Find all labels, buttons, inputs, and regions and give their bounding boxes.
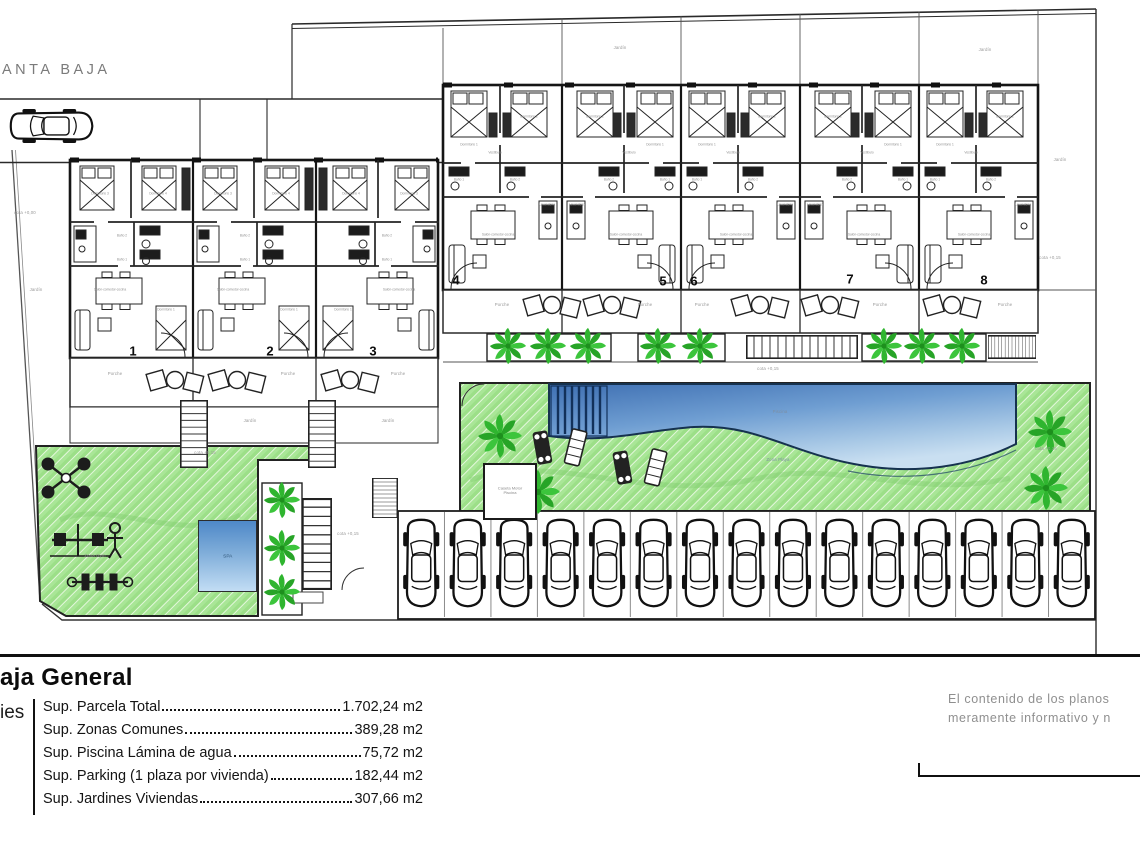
palm-tree-icon: [1024, 466, 1068, 510]
room-label: Dormitorio 1: [884, 143, 902, 146]
porch-label: Porche: [495, 303, 510, 307]
parked-car-icon: [775, 520, 811, 606]
disclaimer-line2: meramente informativo y n: [948, 709, 1111, 728]
room-label: Baño 2: [604, 178, 614, 181]
palm-tree-icon: [944, 328, 980, 364]
room-label: Salón-comedor-cocina: [482, 233, 514, 236]
parked-car-icon: [636, 520, 672, 606]
surface-list: Sup. Parcela Total 1.702,24 m2 Sup. Zona…: [43, 699, 423, 814]
surface-value: 75,72 m2: [363, 745, 423, 761]
parked-car-icon: [543, 520, 579, 606]
room-label: Dormitorio 1: [157, 308, 175, 311]
room-label: Vestíbulo: [726, 151, 739, 154]
room-label: Salón-comedor-cocina: [94, 288, 126, 291]
room-label: Baño 2: [382, 234, 392, 237]
palm-tree-icon: [490, 328, 526, 364]
unit-number: 2: [266, 344, 273, 359]
room-label: Dormitorio 1: [646, 143, 664, 146]
room-label: Dormitorio 1: [698, 143, 716, 146]
garden-label: Jardín: [1054, 158, 1067, 162]
palm-tree-icon: [264, 530, 300, 566]
room-label: Lavandería: [569, 203, 585, 206]
garden-label: Jardín: [614, 46, 627, 50]
palm-tree-icon: [904, 328, 940, 364]
room-label: Baño 2: [510, 178, 520, 181]
room-label: Dormitorio 1: [334, 308, 352, 311]
room-label: Baño 1: [930, 178, 940, 181]
surface-row: Sup. Jardines Viviendas 307,66 m2: [43, 791, 423, 814]
piscina-label: Piscina: [773, 410, 788, 414]
porch-label: Porche: [108, 372, 123, 376]
room-label: Baño 1: [382, 258, 392, 261]
unit-number: 1: [129, 344, 136, 359]
unit-number: 4: [452, 273, 459, 288]
dot-leader: [162, 709, 340, 711]
parked-car-icon: [961, 520, 997, 606]
room-label: Baño 1: [240, 258, 250, 261]
surface-value: 307,66 m2: [354, 791, 423, 807]
room-label: Vestíbulo: [860, 151, 873, 154]
unit-number: 5: [659, 274, 666, 289]
parked-car-icon: [450, 520, 486, 606]
room-label: Baño 2: [117, 234, 127, 237]
garden-label: Jardín: [979, 48, 992, 52]
level-label: cota +0,15: [337, 532, 359, 536]
unit-number: 6: [690, 274, 697, 289]
parked-car-icon: [821, 520, 857, 606]
disclaimer-line1: El contenido de los planos: [948, 690, 1111, 709]
room-label: Salón-comedor-cocina: [610, 233, 642, 236]
gate-arc: [342, 568, 364, 590]
parked-car-icon: [868, 520, 904, 606]
room-label: Dormitorio 2: [824, 115, 842, 118]
room-label: Dormitorio 3: [91, 192, 109, 195]
room-label: Dormitorio 4: [342, 192, 360, 195]
room-label: Lavandería: [777, 203, 793, 206]
level-label: cota +0,15: [1039, 256, 1061, 260]
room-label: Salón-comedor-cocina: [848, 233, 880, 236]
legend-rule: [33, 699, 35, 815]
porch-label: Porche: [873, 303, 888, 307]
zona-playa-label: Zona Playa: [766, 458, 789, 462]
surface-label: Sup. Jardines Viviendas: [43, 791, 198, 807]
room-label: Dormitorio 3: [214, 192, 232, 195]
stairs-icon: [373, 478, 398, 517]
level-label: cota +0,15: [757, 367, 779, 371]
surface-label: Sup. Parking (1 plaza por vivienda): [43, 768, 269, 784]
surface-row: Sup. Parcela Total 1.702,24 m2: [43, 699, 423, 722]
room-label: Lavandería: [1015, 203, 1031, 206]
level-label: cota +0,15: [1035, 447, 1057, 451]
palm-tree-icon: [264, 574, 300, 610]
surface-value: 1.702,24 m2: [342, 699, 423, 715]
dot-leader: [271, 778, 353, 780]
parked-car-icon: [1054, 520, 1090, 606]
room-label: Baño 1: [660, 178, 670, 181]
surface-row: Sup. Piscina Lámina de agua 75,72 m2: [43, 745, 423, 768]
porch-label: Porche: [695, 303, 710, 307]
parked-car-icon: [589, 520, 625, 606]
surface-label: Sup. Parcela Total: [43, 699, 160, 715]
garden-label: Jardín: [382, 419, 395, 423]
room-label: Dormitorio 2: [996, 115, 1014, 118]
parked-car-icon: [1007, 520, 1043, 606]
room-label: Baño 2: [240, 234, 250, 237]
garden-label: Jardín: [244, 419, 257, 423]
room-label: Baño 2: [748, 178, 758, 181]
room-label: Vestíbulo: [964, 151, 977, 154]
palm-tree-icon: [570, 328, 606, 364]
legend-title: aja General: [0, 664, 133, 692]
palm-tree-icon: [640, 328, 676, 364]
plan-title: ANTA BAJA: [2, 62, 111, 78]
label-box: [293, 592, 323, 603]
surface-row: Sup. Zonas Comunes 389,28 m2: [43, 722, 423, 745]
stairs-icon: [303, 499, 331, 589]
title-block-line: [918, 775, 1140, 777]
room-label: Salón-comedor-cocina: [958, 233, 990, 236]
room-label: Dormitorio 1: [460, 143, 478, 146]
room-label: Dormitorio 2: [758, 115, 776, 118]
unit-number: 3: [369, 344, 376, 359]
pool-motor-shed: Caseta Motor Piscina: [483, 463, 537, 520]
dot-leader: [185, 732, 352, 734]
room-label: Lavandería: [807, 203, 823, 206]
room-label: Lavandería: [539, 203, 555, 206]
surface-label: Sup. Zonas Comunes: [43, 722, 183, 738]
deck-steps-icon: [988, 336, 1035, 358]
porch-label: Porche: [638, 303, 653, 307]
palm-tree-icon: [264, 482, 300, 518]
parked-car-icon: [682, 520, 718, 606]
stairs-icon: [309, 401, 335, 467]
parked-car-icon: [728, 520, 764, 606]
title-block-tick: [918, 763, 920, 777]
room-label: Baño 2: [986, 178, 996, 181]
room-label: Dormitorio 1: [936, 143, 954, 146]
palm-tree-icon: [682, 328, 718, 364]
room-label: Salón-comedor-cocina: [383, 288, 415, 291]
room-label: Baño 2: [842, 178, 852, 181]
room-label: Salón-comedor-cocina: [720, 233, 752, 236]
level-label: cota +0,00: [14, 211, 36, 215]
porch-label: Porche: [391, 372, 406, 376]
surface-value: 389,28 m2: [354, 722, 423, 738]
room-label: Salón-comedor-cocina: [217, 288, 249, 291]
porch-label: Porche: [998, 303, 1013, 307]
floor-plan-sheet: ANTA BAJA SPA Caseta Motor Piscina Zona …: [0, 0, 1140, 860]
room-label: Vestíbulo: [622, 151, 635, 154]
room-label: Dormitorio 2: [520, 115, 538, 118]
palm-tree-icon: [478, 414, 522, 458]
surface-row: Sup. Parking (1 plaza por vivienda) 182,…: [43, 768, 423, 791]
palm-tree-icon: [530, 328, 566, 364]
dot-leader: [234, 755, 361, 757]
stairs-icon: [181, 401, 207, 467]
room-label: Baño 1: [692, 178, 702, 181]
dot-leader: [200, 801, 352, 803]
level-label: cota +0,15: [194, 451, 216, 455]
surface-label: Sup. Piscina Lámina de agua: [43, 745, 232, 761]
spa-label: SPA: [223, 554, 232, 559]
porch-label: Porche: [281, 372, 296, 376]
room-label: Dormitorio 4: [272, 192, 290, 195]
garden-label: Jardín: [30, 288, 43, 292]
sheet-divider: [0, 654, 1140, 657]
room-label: Baño 1: [898, 178, 908, 181]
room-label: Dormitorio 3: [400, 192, 418, 195]
room-label: Dormitorio 1: [280, 308, 298, 311]
caseta-label: Caseta Motor Piscina: [496, 487, 525, 497]
room-label: Baño 1: [454, 178, 464, 181]
parked-car-icon: [11, 109, 93, 143]
room-label: Dormitorio 2: [586, 115, 604, 118]
parked-car-icon: [403, 520, 439, 606]
zona-gym-label: Zona Gym: [84, 554, 105, 558]
spa-pool: SPA: [198, 520, 257, 592]
unit-number: 7: [846, 272, 853, 287]
room-label: Vestíbulo: [488, 151, 501, 154]
unit-number: 8: [980, 273, 987, 288]
disclaimer: El contenido de los planos meramente inf…: [948, 690, 1111, 729]
room-label: Dormitorio 4: [149, 192, 167, 195]
room-label: Baño 1: [117, 258, 127, 261]
surface-value: 182,44 m2: [354, 768, 423, 784]
legend-side-label: ies: [0, 702, 24, 724]
palm-tree-icon: [866, 328, 902, 364]
parked-car-icon: [914, 520, 950, 606]
deck-steps-icon: [747, 336, 857, 358]
parked-car-icon: [496, 520, 532, 606]
